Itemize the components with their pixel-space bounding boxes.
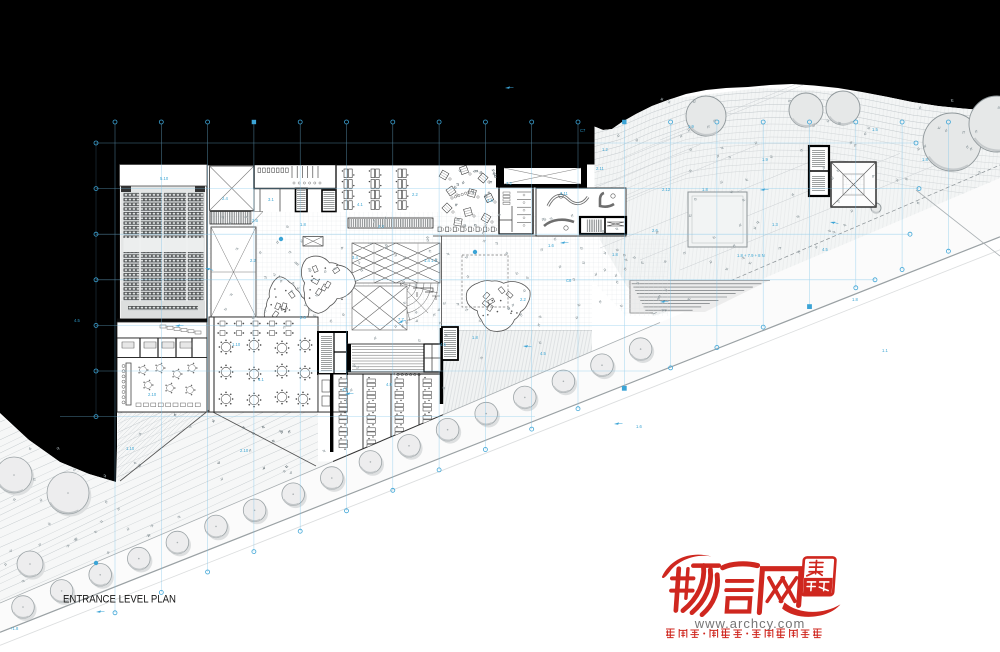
svg-text:1.2: 1.2: [602, 147, 608, 152]
svg-text:1.10: 1.10: [126, 446, 135, 451]
svg-text:1.8: 1.8: [852, 297, 858, 302]
svg-text:1.5: 1.5: [872, 127, 878, 132]
svg-text:2.10: 2.10: [148, 392, 157, 397]
svg-text:1.1: 1.1: [882, 348, 888, 353]
svg-text:1.6: 1.6: [548, 243, 554, 248]
svg-text:3.1: 3.1: [268, 197, 274, 202]
svg-text:5.10: 5.10: [160, 176, 169, 181]
svg-text:1.9: 1.9: [688, 124, 694, 129]
svg-text:3.11: 3.11: [560, 191, 569, 196]
svg-text:1.10: 1.10: [232, 342, 241, 347]
svg-text:1.9: 1.9: [762, 157, 768, 162]
svg-text:ENTRANCE LEVEL PLAN: ENTRANCE LEVEL PLAN: [63, 594, 176, 606]
svg-text:4.1: 4.1: [258, 377, 264, 382]
svg-text:4.5: 4.5: [440, 342, 446, 347]
svg-text:1.8: 1.8: [612, 252, 618, 257]
svg-text:1.8: 1.8: [922, 157, 928, 162]
svg-text:1.3: 1.3: [772, 222, 778, 227]
svg-text:3.4: 3.4: [352, 255, 358, 260]
svg-text:2.8: 2.8: [300, 315, 306, 320]
svg-text:4.1: 4.1: [357, 202, 363, 207]
svg-text:2.3: 2.3: [378, 224, 384, 229]
svg-text:+1.8: +1.8: [10, 626, 19, 631]
svg-text:7.2: 7.2: [506, 181, 512, 186]
svg-text:2.2: 2.2: [520, 297, 526, 302]
svg-text:2.2: 2.2: [412, 192, 418, 197]
svg-text:C8: C8: [566, 278, 572, 283]
svg-text:2.2: 2.2: [250, 258, 256, 263]
svg-text:2.4: 2.4: [222, 196, 228, 201]
svg-text:4.5: 4.5: [74, 318, 80, 323]
svg-text:1.8 + 7.9 + 8 N: 1.8 + 7.9 + 8 N: [737, 253, 765, 258]
svg-text:www.archcy.com: www.archcy.com: [694, 616, 806, 631]
svg-text:1.8: 1.8: [300, 222, 306, 227]
svg-text:4.5: 4.5: [822, 247, 828, 252]
svg-text:1.8: 1.8: [472, 335, 478, 340]
svg-text:2.11: 2.11: [596, 166, 605, 171]
svg-text:2.6: 2.6: [652, 228, 658, 233]
svg-text:1.6: 1.6: [636, 424, 642, 429]
svg-text:1.8: 1.8: [702, 187, 708, 192]
svg-text:2.6: 2.6: [252, 218, 258, 223]
svg-text:2.10: 2.10: [240, 448, 249, 453]
svg-text:4.6: 4.6: [342, 387, 348, 392]
svg-text:4.5: 4.5: [540, 351, 546, 356]
svg-text:4.8: 4.8: [386, 382, 392, 387]
svg-text:C7: C7: [580, 128, 586, 133]
svg-text:2.8: 2.8: [487, 198, 493, 203]
svg-text:2.12: 2.12: [662, 187, 671, 192]
